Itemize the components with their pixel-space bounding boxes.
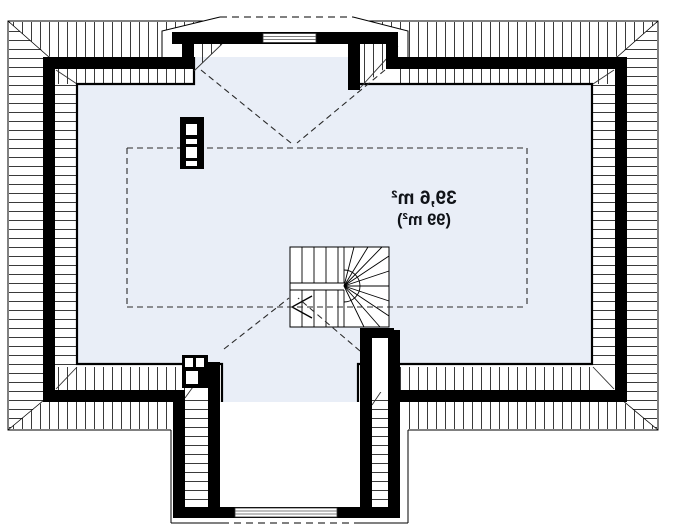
area-label: 39,6 m² (99 m²) xyxy=(391,188,456,229)
chimney-icon xyxy=(182,355,208,388)
bottom-dormer-window xyxy=(235,508,337,517)
staircase xyxy=(290,247,389,327)
door-opening xyxy=(372,338,388,392)
top-dormer-window xyxy=(263,34,316,43)
chimney-icon xyxy=(180,117,204,169)
floor-plan-canvas: 39,6 m² (99 m²) xyxy=(0,0,700,526)
floor-plan: 39,6 m² (99 m²) xyxy=(0,0,700,526)
area-label-line1: 39,6 m² xyxy=(391,188,456,209)
area-label-line2: (99 m²) xyxy=(397,211,451,229)
